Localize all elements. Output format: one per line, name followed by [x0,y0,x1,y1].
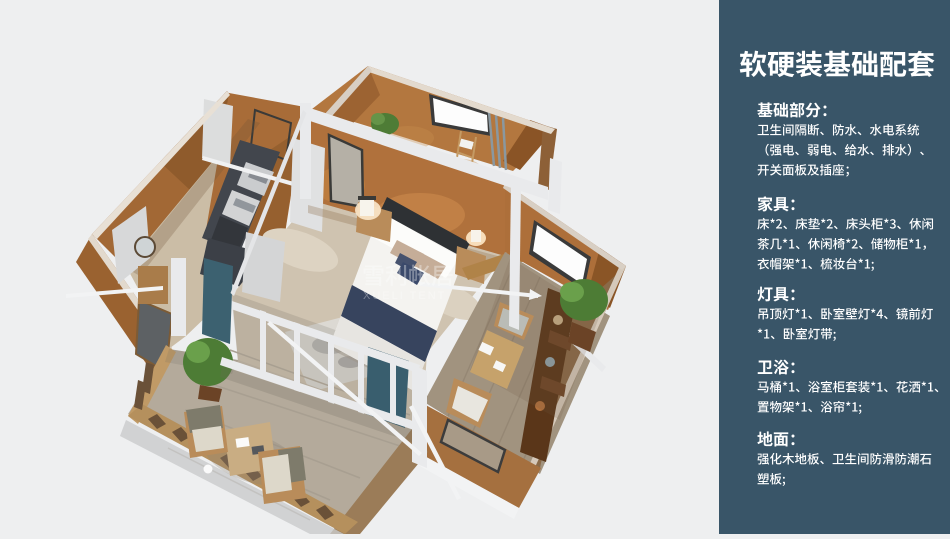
svg-text:XUELI TENT: XUELI TENT [363,290,446,302]
